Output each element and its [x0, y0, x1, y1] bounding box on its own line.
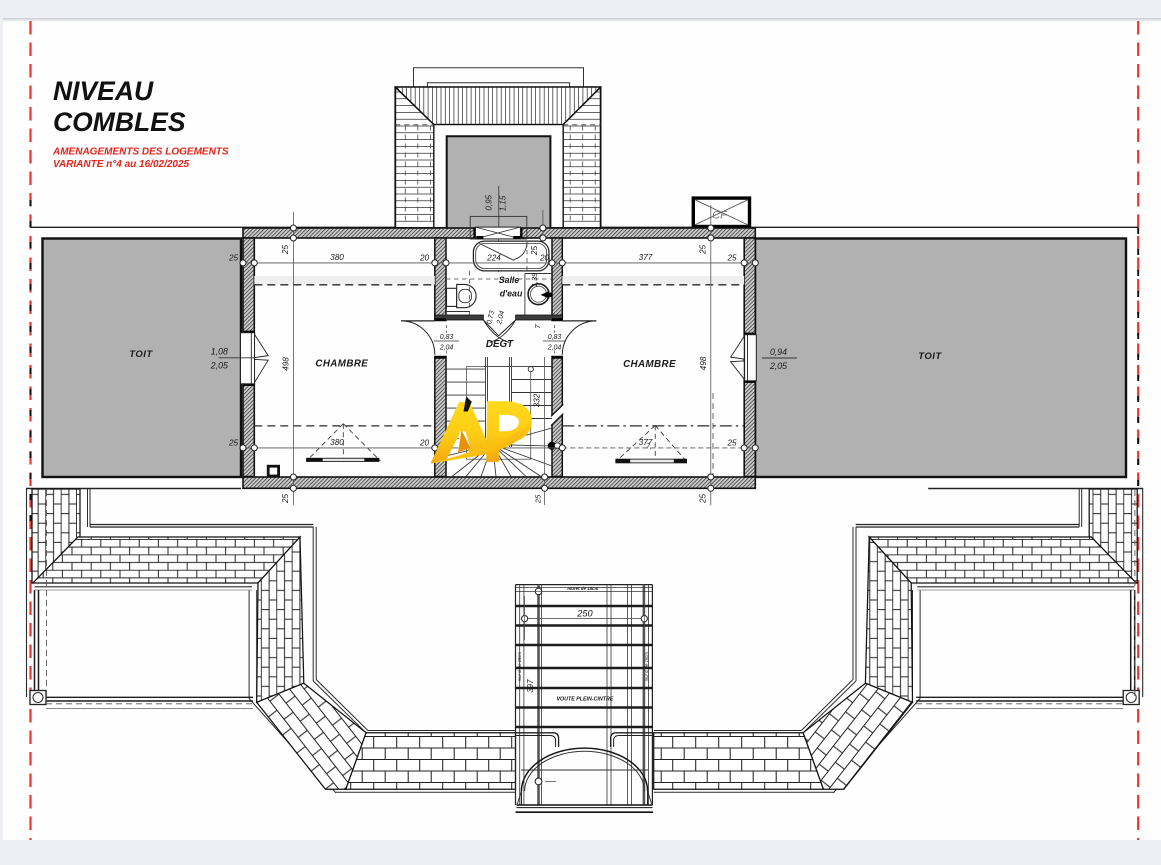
svg-text:380: 380	[330, 253, 344, 262]
svg-text:377: 377	[639, 438, 653, 447]
svg-text:0,83: 0,83	[440, 334, 454, 341]
svg-text:25: 25	[281, 494, 290, 505]
svg-text:0,83: 0,83	[548, 334, 562, 341]
svg-text:TOIT: TOIT	[918, 351, 942, 362]
svg-text:498: 498	[699, 356, 708, 370]
svg-text:mur d. de 15cm: mur d. de 15cm	[517, 652, 522, 682]
svg-text:muret de 15cm: muret de 15cm	[567, 586, 598, 591]
svg-text:COMBLES: COMBLES	[53, 107, 186, 137]
svg-text:25: 25	[228, 253, 239, 262]
svg-text:332: 332	[533, 393, 542, 407]
svg-text:25: 25	[228, 438, 239, 447]
svg-text:25: 25	[534, 494, 543, 504]
svg-text:NIVEAU: NIVEAU	[53, 76, 154, 106]
svg-text:CHAMBRE: CHAMBRE	[623, 359, 676, 370]
svg-text:2,05: 2,05	[210, 361, 228, 371]
svg-text:1,39: 1,39	[530, 273, 539, 287]
svg-text:397: 397	[526, 679, 535, 693]
svg-text:20: 20	[539, 253, 550, 262]
svg-text:2,04: 2,04	[439, 345, 454, 352]
svg-text:DEGT: DEGT	[486, 339, 514, 350]
svg-text:0,94: 0,94	[770, 347, 787, 357]
svg-text:Salle: Salle	[499, 275, 520, 285]
svg-text:VARIANTE n°4 au 16/02/2025: VARIANTE n°4 au 16/02/2025	[53, 159, 190, 170]
svg-text:377: 377	[639, 253, 653, 262]
svg-text:25: 25	[281, 245, 290, 256]
svg-text:25: 25	[698, 245, 707, 256]
svg-text:VOUTE PLEIN-CINTRE: VOUTE PLEIN-CINTRE	[557, 697, 614, 703]
svg-text:d'eau: d'eau	[500, 289, 523, 299]
svg-text:AMENAGEMENTS DES LOGEMENTS: AMENAGEMENTS DES LOGEMENTS	[52, 147, 229, 158]
svg-text:0,95: 0,95	[484, 194, 493, 210]
svg-text:250: 250	[576, 609, 593, 619]
svg-text:1,15: 1,15	[499, 195, 508, 211]
svg-text:2,04: 2,04	[547, 345, 562, 352]
svg-text:224: 224	[486, 253, 501, 262]
svg-text:1,08: 1,08	[211, 347, 228, 357]
svg-text:20: 20	[419, 253, 430, 262]
svg-text:CHAMBRE: CHAMBRE	[315, 359, 368, 370]
svg-text:25: 25	[530, 246, 539, 257]
svg-text:CF: CF	[712, 210, 728, 222]
svg-text:TOIT: TOIT	[129, 349, 153, 360]
svg-text:mur d. de 15cm: mur d. de 15cm	[644, 652, 649, 682]
svg-text:380: 380	[330, 438, 344, 447]
svg-text:2,05: 2,05	[769, 361, 787, 371]
svg-text:25: 25	[726, 438, 737, 447]
svg-text:25: 25	[726, 253, 737, 262]
svg-text:498: 498	[282, 357, 291, 371]
svg-text:20: 20	[419, 438, 430, 447]
svg-text:25: 25	[698, 494, 707, 505]
